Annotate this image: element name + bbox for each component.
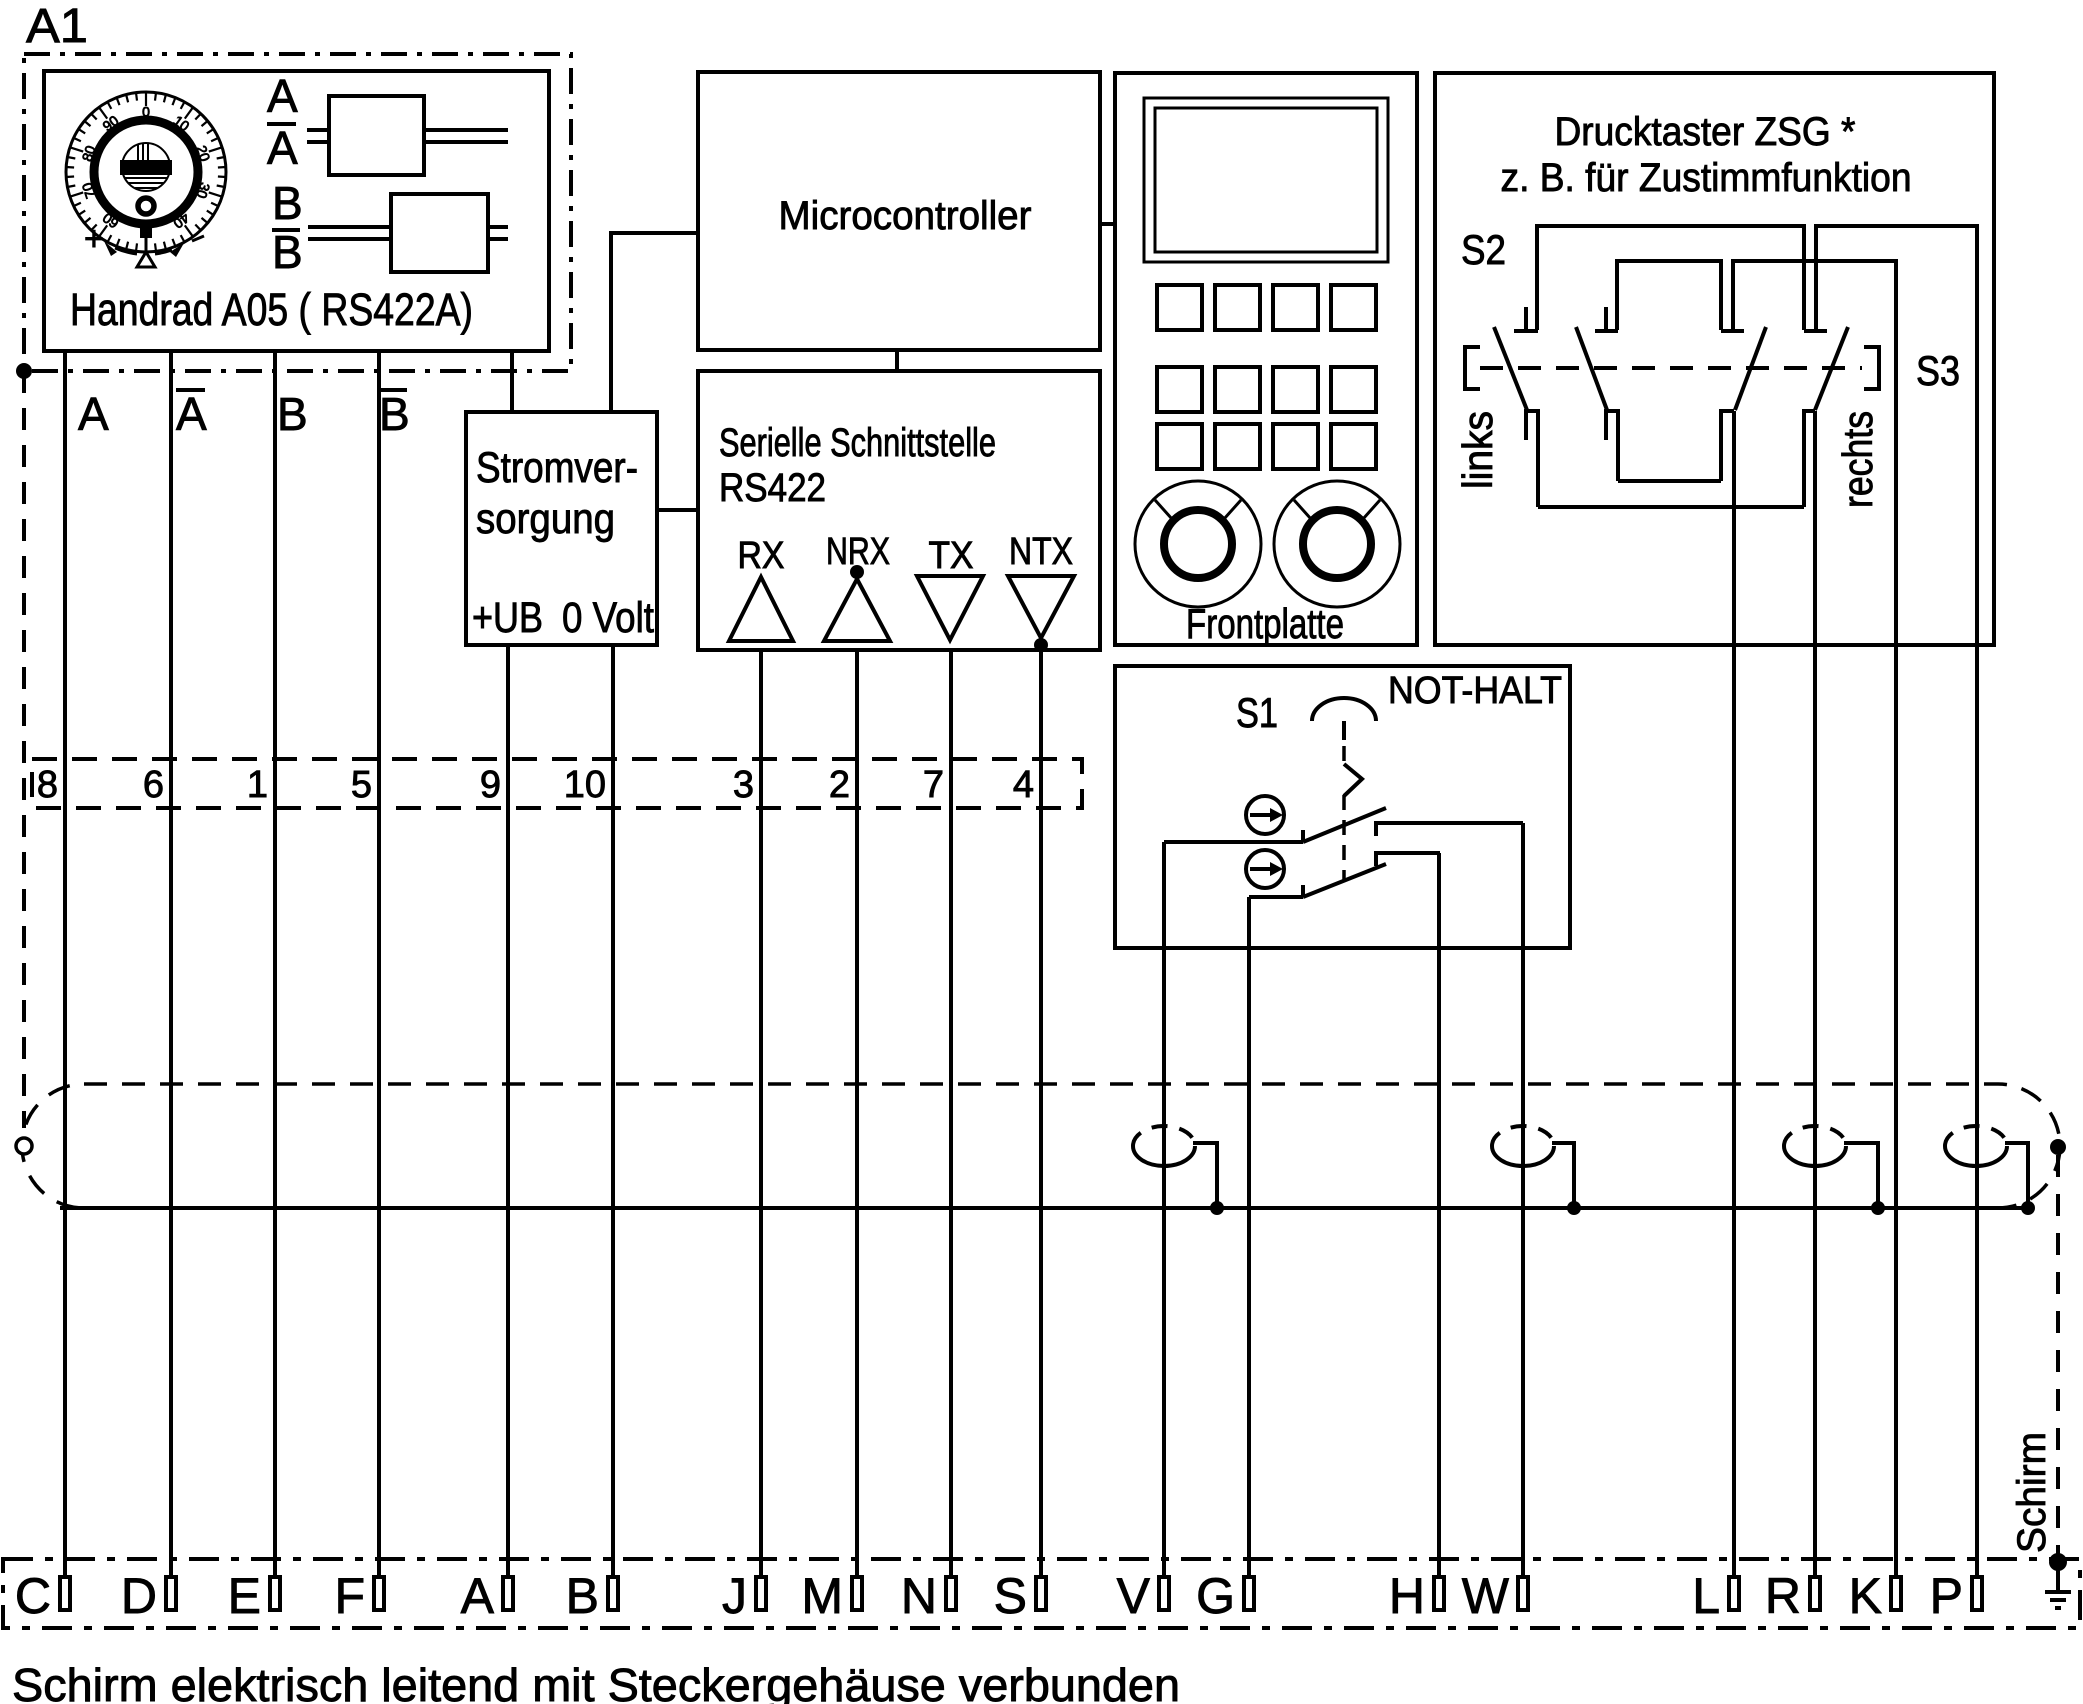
svg-text:S3: S3	[1916, 347, 1960, 394]
svg-text:W: W	[1462, 1568, 1510, 1624]
svg-text:+UB: +UB	[472, 594, 543, 642]
svg-text:P: P	[1930, 1568, 1963, 1624]
svg-text:A1: A1	[26, 0, 88, 53]
svg-text:rechts: rechts	[1834, 411, 1881, 508]
svg-text:F: F	[334, 1568, 365, 1624]
svg-text:D: D	[121, 1568, 157, 1624]
svg-text:A: A	[267, 70, 298, 122]
svg-text:A: A	[78, 388, 109, 440]
svg-text:NOT-HALT: NOT-HALT	[1388, 670, 1562, 712]
svg-text:A: A	[461, 1568, 495, 1624]
svg-text:3: 3	[733, 764, 754, 806]
svg-text:z. B. für Zustimmfunktion: z. B. für Zustimmfunktion	[1501, 156, 1912, 200]
svg-text:RS422: RS422	[719, 466, 826, 510]
svg-text:Stromver-: Stromver-	[476, 444, 638, 492]
svg-text:NTX: NTX	[1009, 531, 1073, 573]
svg-text:7: 7	[923, 764, 944, 806]
svg-text:A: A	[267, 122, 298, 174]
svg-text:TX: TX	[929, 535, 974, 577]
svg-text:A: A	[176, 388, 207, 440]
svg-text:S2: S2	[1461, 226, 1506, 273]
svg-text:B: B	[566, 1568, 599, 1624]
svg-text:G: G	[1196, 1568, 1235, 1624]
svg-text:B: B	[277, 388, 308, 440]
svg-text:10: 10	[564, 764, 606, 806]
svg-text:1: 1	[247, 764, 268, 806]
svg-text:0: 0	[142, 104, 150, 120]
svg-text:E: E	[228, 1568, 261, 1624]
svg-text:H: H	[1389, 1568, 1425, 1624]
svg-text:N: N	[901, 1568, 937, 1624]
svg-text:+: +	[84, 220, 104, 258]
svg-text:B: B	[379, 388, 410, 440]
svg-text:Schirm: Schirm	[2010, 1432, 2054, 1553]
svg-text:links: links	[1454, 411, 1501, 489]
svg-text:6: 6	[143, 764, 164, 806]
svg-text:L: L	[1692, 1568, 1720, 1624]
svg-text:2: 2	[829, 764, 850, 806]
svg-text:M: M	[801, 1568, 843, 1624]
svg-text:9: 9	[480, 764, 501, 806]
svg-text:V: V	[1117, 1568, 1151, 1624]
svg-text:C: C	[15, 1568, 51, 1624]
svg-text:S1: S1	[1236, 689, 1278, 736]
svg-text:5: 5	[351, 764, 372, 806]
svg-text:Schirm elektrisch leitend mit: Schirm elektrisch leitend mit Steckergeh…	[12, 1659, 1180, 1704]
svg-text:sorgung: sorgung	[476, 495, 615, 543]
svg-text:Drucktaster ZSG *: Drucktaster ZSG *	[1555, 110, 1856, 154]
svg-text:K: K	[1849, 1568, 1882, 1624]
svg-text:Microcontroller: Microcontroller	[779, 194, 1032, 238]
svg-text:B: B	[272, 226, 303, 278]
svg-text:R: R	[1765, 1568, 1801, 1624]
svg-text:RX: RX	[738, 535, 785, 577]
svg-text:B: B	[272, 177, 303, 229]
svg-text:8: 8	[37, 764, 58, 806]
svg-text:J: J	[722, 1568, 747, 1624]
svg-text:4: 4	[1013, 764, 1034, 806]
svg-text:S: S	[994, 1568, 1027, 1624]
svg-text:Handrad A05 ( RS422A): Handrad A05 ( RS422A)	[70, 284, 473, 335]
svg-text:Frontplatte: Frontplatte	[1186, 600, 1344, 647]
svg-text:Serielle Schnittstelle: Serielle Schnittstelle	[719, 421, 996, 465]
svg-text:0 Volt: 0 Volt	[562, 594, 654, 642]
